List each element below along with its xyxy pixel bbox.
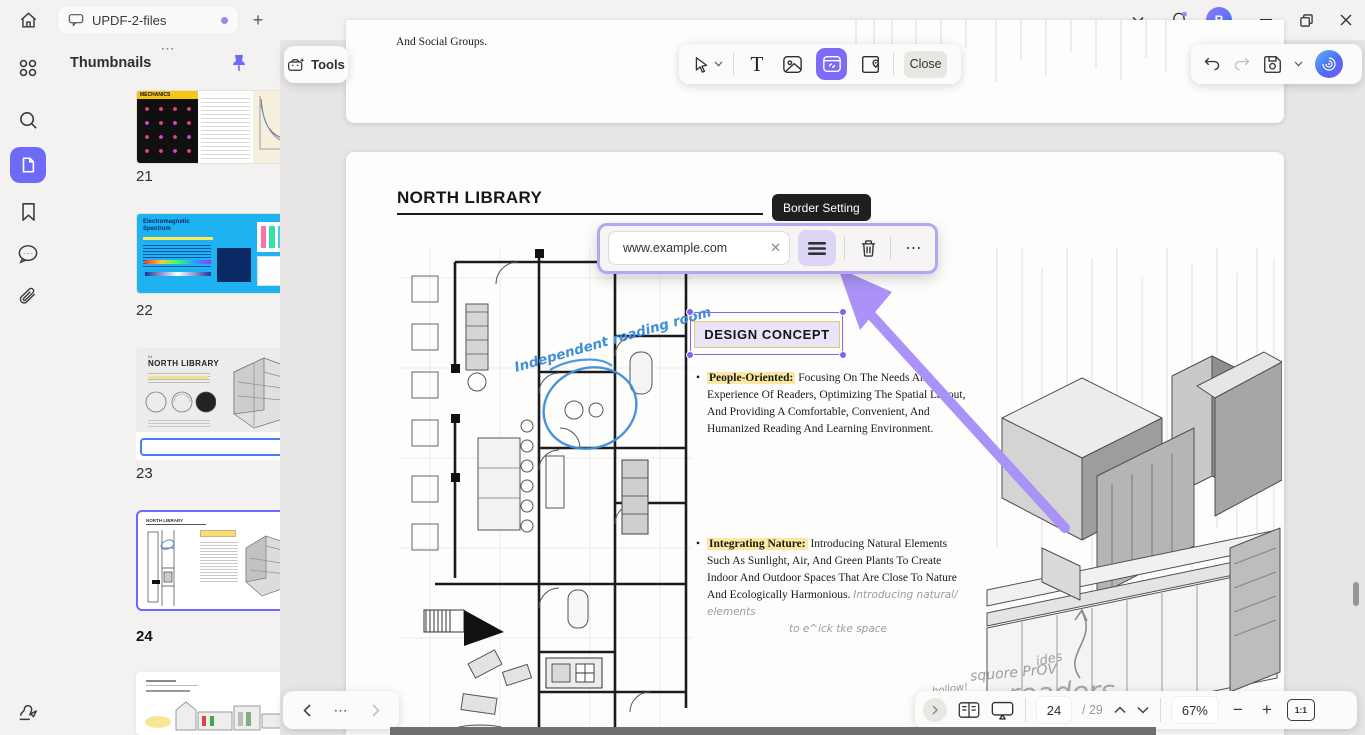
- home-icon: [19, 11, 38, 30]
- page-link-tool-button[interactable]: [857, 50, 883, 78]
- horizontal-scrollbar-thumb[interactable]: [390, 727, 1156, 735]
- thumb24-page-title: NORTH LIBRARY: [146, 518, 183, 523]
- link-url-field: ✕: [608, 231, 790, 265]
- page-icon: [19, 156, 37, 174]
- collapse-statusbar-button[interactable]: [923, 698, 947, 722]
- sidebar-rail: [0, 40, 56, 735]
- updf-window: UPDF-2-files + R: [0, 0, 1365, 735]
- restore-button[interactable]: [1295, 9, 1317, 31]
- thumb21-caption-row: 21 ⋯: [136, 168, 299, 185]
- grid-icon: [18, 58, 38, 78]
- zoom-level-input[interactable]: 67%: [1172, 697, 1218, 723]
- close-window-button[interactable]: [1335, 9, 1357, 31]
- purple-arrow-annotation[interactable]: [820, 260, 1080, 540]
- thumb24-floorplan: [144, 528, 196, 608]
- page-layout-icon[interactable]: [958, 701, 980, 719]
- document-workspace: And Social Groups. NORTH LIBRARY: [280, 40, 1365, 735]
- selection-handle-bl[interactable]: [686, 351, 694, 359]
- chevron-right-icon[interactable]: [372, 704, 380, 717]
- handwritten-note-line2[interactable]: to e^ick tke space: [707, 621, 969, 638]
- title-underline: [397, 213, 763, 215]
- sidebar-item-stamp[interactable]: [14, 698, 42, 726]
- thumb23-page-title: NORTH LIBRARY: [148, 359, 219, 368]
- sidebar-item-thumbnails[interactable]: [10, 147, 46, 183]
- chevron-right-icon: [932, 705, 938, 715]
- bullet-label: People-Oriented:: [707, 372, 795, 384]
- thumb23-caption-row: 23 ⋯: [136, 465, 299, 482]
- thumb23-number: 23: [136, 465, 153, 482]
- next-page-button[interactable]: [1137, 706, 1149, 714]
- save-options-chevron-icon[interactable]: [1294, 61, 1303, 67]
- close-icon: [1340, 14, 1352, 26]
- thumb22-page-title: Electromagnetic Spectrum: [143, 219, 203, 233]
- previous-page-text: And Social Groups.: [396, 36, 487, 48]
- thumb22-caption-row: 22 ⋯: [136, 302, 299, 319]
- sidebar-item-home-grid[interactable]: [14, 54, 42, 82]
- quick-actions-bar: [1191, 44, 1362, 84]
- popup-divider: [844, 236, 845, 260]
- pin-icon: [231, 54, 247, 72]
- close-toolbar-button[interactable]: Close: [904, 51, 947, 78]
- ai-assistant-button[interactable]: [1315, 50, 1343, 78]
- thumb21-number: 21: [136, 168, 153, 185]
- border-setting-tooltip: Border Setting: [772, 194, 871, 221]
- text-tool-button[interactable]: T: [744, 50, 770, 78]
- thumb22-number: 22: [136, 302, 153, 319]
- previous-page-button[interactable]: [1114, 706, 1126, 714]
- tools-icon: [287, 56, 305, 73]
- panel-drag-handle[interactable]: ⋯: [156, 40, 180, 57]
- thumb24-number: 24: [136, 628, 153, 645]
- sidebar-item-bookmarks[interactable]: [14, 198, 42, 226]
- pagination-more-button[interactable]: ⋯: [334, 702, 349, 719]
- close-label: Close: [910, 57, 942, 71]
- image-icon: [782, 55, 803, 74]
- actual-size-button[interactable]: 1:1: [1287, 699, 1315, 721]
- link-edit-popup: ✕ ⋯: [597, 223, 938, 274]
- zoom-in-button[interactable]: +: [1258, 701, 1276, 719]
- save-icon[interactable]: [1263, 55, 1282, 74]
- file-bubble-icon: [68, 13, 84, 27]
- curved-arrow-annotation[interactable]: [1058, 592, 1118, 682]
- delete-link-button[interactable]: [852, 232, 884, 264]
- link-url-input[interactable]: [621, 240, 770, 256]
- thumbnail-page-23[interactable]: 04 NORTH LIBRARY: [136, 348, 299, 460]
- redo-icon[interactable]: [1233, 56, 1251, 72]
- page-total-label: / 29: [1082, 703, 1103, 717]
- chevron-down-icon: [714, 61, 723, 67]
- thumbnails-panel-title: Thumbnails: [70, 55, 151, 71]
- undo-icon[interactable]: [1203, 56, 1221, 72]
- popup-divider: [890, 236, 891, 260]
- link-tool-button-active[interactable]: [816, 48, 848, 80]
- tools-button[interactable]: Tools: [284, 46, 348, 83]
- vertical-scrollbar-thumb[interactable]: [1353, 582, 1359, 606]
- more-options-button[interactable]: ⋯: [896, 232, 932, 264]
- thumbnail-page-21[interactable]: MECHANICS: [136, 90, 299, 164]
- home-button[interactable]: [14, 6, 42, 34]
- comment-icon: [17, 244, 39, 264]
- border-setting-button[interactable]: [798, 230, 836, 266]
- statusbar-divider: [1160, 698, 1161, 722]
- new-tab-button[interactable]: +: [246, 8, 270, 32]
- trash-icon: [860, 239, 877, 258]
- thumbnail-page-22[interactable]: Electromagnetic Spectrum: [136, 213, 299, 294]
- presentation-icon[interactable]: [991, 701, 1014, 720]
- pin-panel-button[interactable]: [228, 52, 250, 74]
- link-toolbar: T Close: [679, 44, 961, 84]
- zoom-out-button[interactable]: −: [1229, 701, 1247, 719]
- search-icon: [18, 110, 39, 131]
- page-number-input[interactable]: 24: [1037, 697, 1071, 723]
- thumb23-selection-box[interactable]: [140, 438, 295, 456]
- pdf-page-title: NORTH LIBRARY: [397, 188, 542, 208]
- ai-swirl-icon: [1321, 56, 1337, 72]
- toolbar-divider: [733, 52, 734, 76]
- chevron-left-icon[interactable]: [303, 704, 311, 717]
- tooltip-text: Border Setting: [783, 201, 860, 215]
- cursor-icon: [693, 56, 710, 73]
- thumbnails-panel: ⋯ Thumbnails MECHANICS 21 ⋯: [56, 40, 280, 735]
- page-pin-icon: [861, 55, 880, 74]
- restore-icon: [1300, 14, 1313, 27]
- thumb23-diagrams: [144, 390, 216, 414]
- lines-icon: [808, 242, 826, 255]
- link-icon: [822, 55, 842, 73]
- tools-label: Tools: [311, 57, 345, 72]
- document-tab[interactable]: UPDF-2-files: [58, 6, 238, 34]
- select-tool-button[interactable]: [693, 56, 723, 73]
- statusbar-divider: [1025, 698, 1026, 722]
- bullet-integrating-nature: • Integrating Nature: Introducing Natura…: [698, 536, 969, 638]
- paperclip-icon: [18, 287, 39, 308]
- image-tool-button[interactable]: [780, 50, 806, 78]
- status-toolbar: 24 / 29 67% − + 1:1: [915, 691, 1357, 729]
- sidebar-item-attachments[interactable]: [14, 283, 42, 311]
- thumb21-page-title: MECHANICS: [137, 91, 198, 99]
- thumbnail-page-24-current[interactable]: NORTH LIBRARY: [136, 510, 299, 611]
- thumbnail-page-25[interactable]: [136, 672, 299, 735]
- thumb24-caption-row: 24 ⋯: [136, 628, 299, 645]
- bullet-label: Integrating Nature:: [707, 538, 808, 550]
- tab-title: UPDF-2-files: [92, 13, 213, 28]
- thumb25-section-drawing: [142, 696, 294, 734]
- stamp-icon: [17, 701, 39, 723]
- toolbar-divider: [893, 52, 894, 76]
- thumbnail-pagination-bar: ⋯: [283, 691, 399, 729]
- selection-handle-tl[interactable]: [686, 308, 694, 316]
- sidebar-item-search[interactable]: [14, 106, 42, 134]
- sidebar-item-comments[interactable]: [14, 240, 42, 268]
- bookmark-icon: [20, 202, 37, 222]
- unsaved-dot-icon: [221, 17, 228, 24]
- clear-url-button[interactable]: ✕: [770, 240, 781, 256]
